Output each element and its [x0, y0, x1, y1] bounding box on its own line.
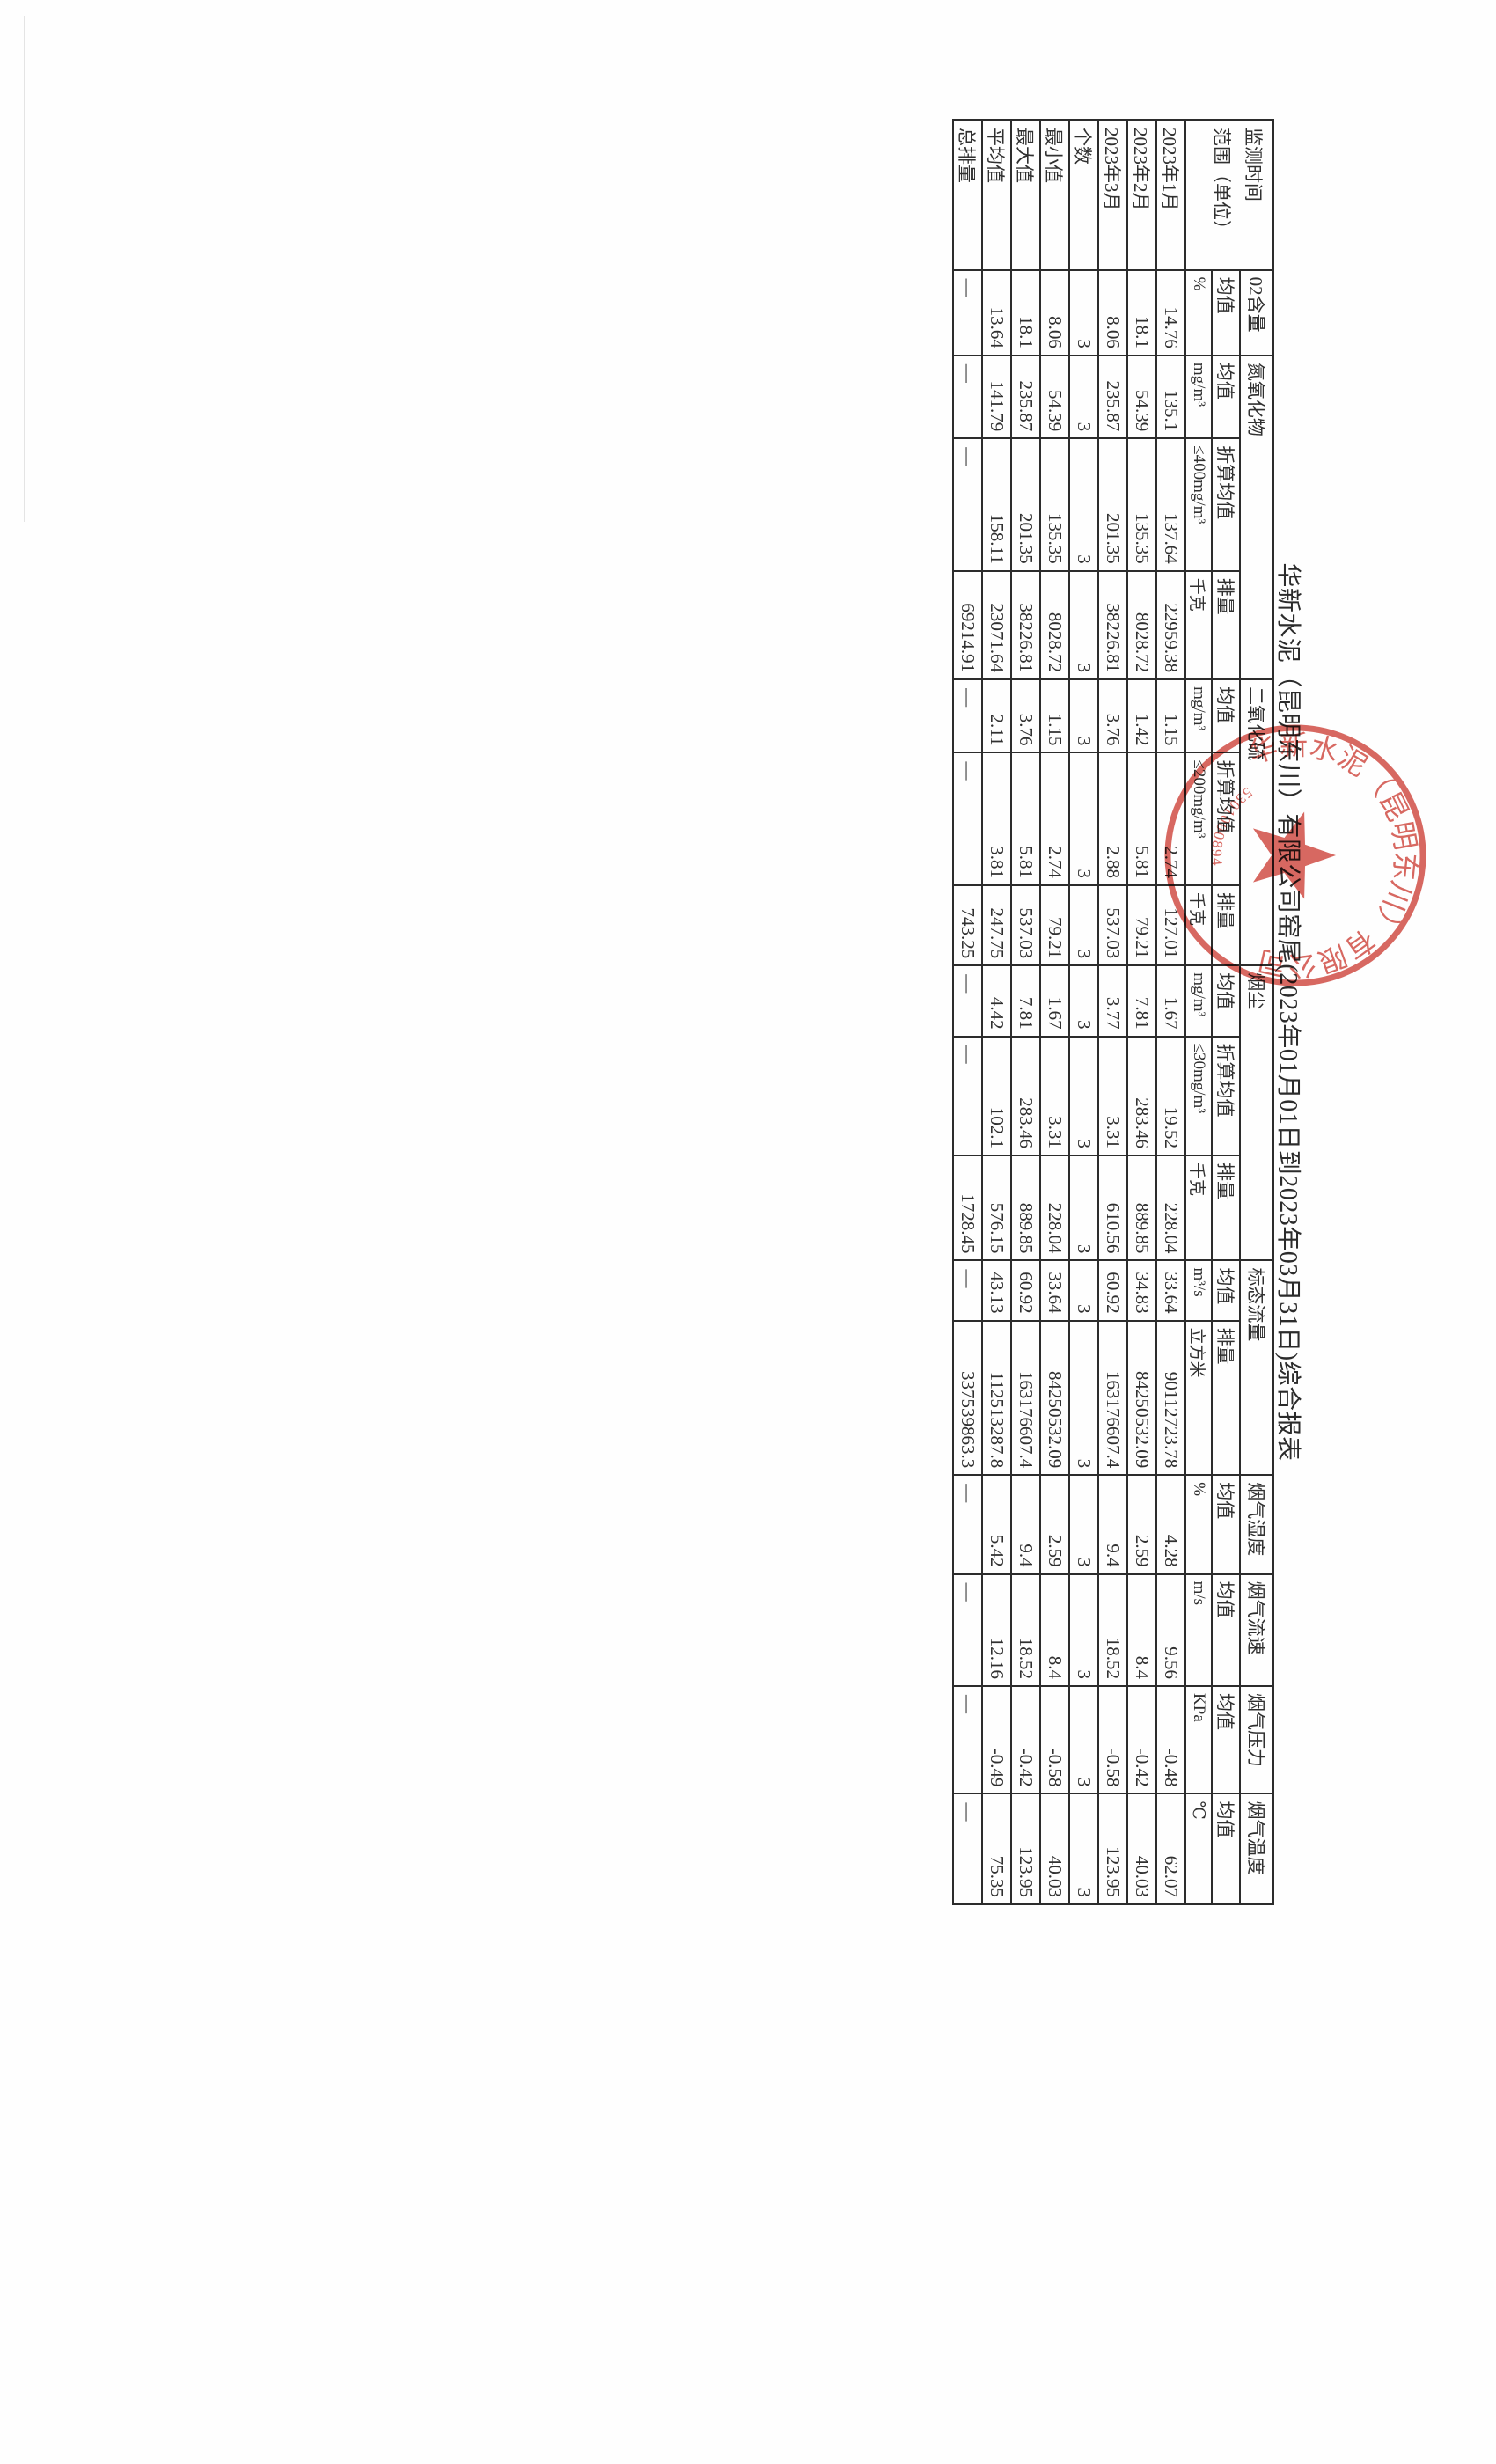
data-cell: 163176607.4 — [1011, 1321, 1040, 1476]
data-cell: 40.03 — [1040, 1793, 1069, 1904]
table-row: 2023年1月14.76135.1137.6422959.381.152.741… — [1156, 120, 1185, 1904]
data-cell: 163176607.4 — [1098, 1321, 1127, 1476]
data-cell: 38226.81 — [1098, 571, 1127, 679]
data-cell: 4.28 — [1156, 1475, 1185, 1573]
data-cell: 7.81 — [1127, 965, 1156, 1036]
data-cell: 33.64 — [1040, 1260, 1069, 1320]
data-cell: 19.52 — [1156, 1037, 1185, 1155]
seal-code-text: 5301000894 — [1208, 784, 1256, 868]
group-header-cell: 02含量 — [1240, 270, 1273, 356]
data-cell: 3 — [1069, 571, 1098, 679]
data-cell: 33.64 — [1156, 1260, 1185, 1320]
data-cell: 3 — [1069, 679, 1098, 752]
data-cell: 90112723.78 — [1156, 1321, 1185, 1476]
data-cell: 2.11 — [982, 679, 1011, 752]
table-row: 2023年2月18.154.39135.358028.721.425.8179.… — [1127, 120, 1156, 1904]
seal-star-icon — [1253, 812, 1336, 899]
data-cell: 610.56 — [1098, 1155, 1127, 1260]
data-cell: 2.59 — [1040, 1475, 1069, 1573]
data-cell: — — [953, 356, 982, 438]
data-cell: 228.04 — [1156, 1155, 1185, 1260]
unit-cell: m/s — [1185, 1574, 1212, 1686]
data-cell: 3 — [1069, 356, 1098, 438]
data-cell: 3 — [1069, 965, 1098, 1036]
report-title: 华新水泥（昆明东川）有限公司窑尾(2023年01月01日到2023年03月31日… — [1272, 119, 1308, 1905]
table-row: 最小值8.0654.39135.358028.721.152.7479.211.… — [1040, 120, 1069, 1904]
data-cell: 3 — [1069, 270, 1098, 356]
data-cell: 283.46 — [1127, 1037, 1156, 1155]
data-cell: 8028.72 — [1127, 571, 1156, 679]
group-header-cell: 烟气温度 — [1240, 1793, 1273, 1904]
corner-header-cell: 监测时间范围（单位） — [1185, 120, 1273, 270]
data-cell: 3.76 — [1098, 679, 1127, 752]
data-cell: -0.42 — [1011, 1686, 1040, 1793]
data-cell: 537.03 — [1098, 885, 1127, 965]
company-seal-stamp: 华新水泥（昆明东川）有限公司 5301000894 — [1162, 722, 1429, 989]
data-cell: 889.85 — [1127, 1155, 1156, 1260]
data-cell: 3 — [1069, 1155, 1098, 1260]
data-cell: 123.95 — [1098, 1793, 1127, 1904]
group-header-cell: 标态流量 — [1240, 1260, 1273, 1475]
data-cell: 743.25 — [953, 885, 982, 965]
data-cell: 228.04 — [1040, 1155, 1069, 1260]
group-header-cell: 烟尘 — [1240, 965, 1273, 1260]
data-cell: 5.81 — [1011, 752, 1040, 885]
data-cell: -0.58 — [1040, 1686, 1069, 1793]
table-row: 最大值18.1235.87201.3538226.813.765.81537.0… — [1011, 120, 1040, 1904]
data-cell: -0.58 — [1098, 1686, 1127, 1793]
data-cell: 3 — [1069, 1321, 1098, 1476]
data-cell: 13.64 — [982, 270, 1011, 356]
rotated-sheet: 华新水泥（昆明东川）有限公司窑尾(2023年01月01日到2023年03月31日… — [0, 0, 1496, 2464]
data-cell: 60.92 — [1098, 1260, 1127, 1320]
corner-line1: 监测时间 — [1237, 128, 1269, 269]
data-cell: 84250532.09 — [1127, 1321, 1156, 1476]
data-cell: 3 — [1069, 885, 1098, 965]
data-cell: 137.64 — [1156, 438, 1185, 571]
data-cell: 4.42 — [982, 965, 1011, 1036]
data-cell: 18.52 — [1098, 1574, 1127, 1686]
data-cell: 84250532.09 — [1040, 1321, 1069, 1476]
table-row: 平均值13.64141.79158.1123071.642.113.81247.… — [982, 120, 1011, 1904]
scanned-report-page: 华新水泥（昆明东川）有限公司窑尾(2023年01月01日到2023年03月31日… — [0, 0, 1496, 2464]
data-cell: 3 — [1069, 1793, 1098, 1904]
unit-cell: ≤400mg/m³ — [1185, 438, 1212, 571]
subheader-cell: 均值 — [1212, 1686, 1240, 1793]
data-cell: 201.35 — [1098, 438, 1127, 571]
data-cell: 141.79 — [982, 356, 1011, 438]
row-label-cell: 最大值 — [1011, 120, 1040, 270]
data-cell: 3.81 — [982, 752, 1011, 885]
data-cell: 7.81 — [1011, 965, 1040, 1036]
data-cell: 3.31 — [1098, 1037, 1127, 1155]
data-cell: — — [953, 679, 982, 752]
data-cell: 69214.91 — [953, 571, 982, 679]
data-cell: 79.21 — [1040, 885, 1069, 965]
subheader-cell: 均值 — [1212, 1793, 1240, 1904]
data-cell: 3 — [1069, 438, 1098, 571]
data-cell: 158.11 — [982, 438, 1011, 571]
data-cell: — — [953, 270, 982, 356]
row-label-cell: 最小值 — [1040, 120, 1069, 270]
data-cell: 889.85 — [1011, 1155, 1040, 1260]
data-cell: 102.1 — [982, 1037, 1011, 1155]
data-cell: 2.74 — [1040, 752, 1069, 885]
data-cell: 135.35 — [1127, 438, 1156, 571]
data-cell: 235.87 — [1098, 356, 1127, 438]
group-header-cell: 氮氧化物 — [1240, 356, 1273, 679]
data-cell: 3.31 — [1040, 1037, 1069, 1155]
data-cell: 18.1 — [1011, 270, 1040, 356]
unit-cell: KPa — [1185, 1686, 1212, 1793]
subheader-cell: 折算均值 — [1212, 1037, 1240, 1155]
data-cell: 1.67 — [1040, 965, 1069, 1036]
row-label-cell: 平均值 — [982, 120, 1011, 270]
group-header-cell: 烟气压力 — [1240, 1686, 1273, 1793]
data-cell: 3 — [1069, 1475, 1098, 1573]
data-cell: 9.4 — [1011, 1475, 1040, 1573]
data-cell: 3 — [1069, 1260, 1098, 1320]
subheader-cell: 排量 — [1212, 1321, 1240, 1476]
data-cell: — — [953, 1037, 982, 1155]
row-label-cell: 2023年1月 — [1156, 120, 1185, 270]
data-cell: 38226.81 — [1011, 571, 1040, 679]
data-cell: 22959.38 — [1156, 571, 1185, 679]
data-cell: 337539863.3 — [953, 1321, 982, 1476]
data-cell: 9.4 — [1098, 1475, 1127, 1573]
unit-cell: 千克 — [1185, 1155, 1212, 1260]
table-row: 总排量———69214.91——743.25——1728.45—33753986… — [953, 120, 982, 1904]
unit-cell: % — [1185, 270, 1212, 356]
data-cell: 14.76 — [1156, 270, 1185, 356]
subheader-cell: 均值 — [1212, 1260, 1240, 1320]
data-cell: 3.76 — [1011, 679, 1040, 752]
data-cell: 5.42 — [982, 1475, 1011, 1573]
unit-cell: % — [1185, 1475, 1212, 1573]
unit-cell: ≤30mg/m³ — [1185, 1037, 1212, 1155]
data-cell: 75.35 — [982, 1793, 1011, 1904]
data-cell: — — [953, 438, 982, 571]
row-label-cell: 总排量 — [953, 120, 982, 270]
unit-cell: mg/m³ — [1185, 356, 1212, 438]
subheader-cell: 均值 — [1212, 356, 1240, 438]
data-cell: 123.95 — [1011, 1793, 1040, 1904]
data-cell: 283.46 — [1011, 1037, 1040, 1155]
unit-cell: 立方米 — [1185, 1321, 1212, 1476]
data-cell: 8.06 — [1040, 270, 1069, 356]
data-cell: — — [953, 752, 982, 885]
data-cell: — — [953, 1475, 982, 1573]
data-cell: 18.1 — [1127, 270, 1156, 356]
unit-cell: ℃ — [1185, 1793, 1212, 1904]
group-header-cell: 烟气湿度 — [1240, 1475, 1273, 1573]
data-cell: 8.4 — [1127, 1574, 1156, 1686]
data-cell: 3 — [1069, 1686, 1098, 1793]
data-cell: 2.88 — [1098, 752, 1127, 885]
data-cell: 34.83 — [1127, 1260, 1156, 1320]
data-cell: 3 — [1069, 752, 1098, 885]
data-cell: 235.87 — [1011, 356, 1040, 438]
data-cell: — — [953, 1686, 982, 1793]
data-cell: 5.81 — [1127, 752, 1156, 885]
subheader-cell: 均值 — [1212, 1574, 1240, 1686]
data-cell: 3 — [1069, 1574, 1098, 1686]
data-cell: -0.48 — [1156, 1686, 1185, 1793]
data-cell: 18.52 — [1011, 1574, 1040, 1686]
data-cell: 112513287.8 — [982, 1321, 1011, 1476]
data-cell: 3.77 — [1098, 965, 1127, 1036]
data-cell: -0.49 — [982, 1686, 1011, 1793]
table-row: 个数3333333333333333 — [1069, 120, 1098, 1904]
data-cell: — — [953, 1260, 982, 1320]
data-cell: 1.15 — [1040, 679, 1069, 752]
data-cell: 247.75 — [982, 885, 1011, 965]
data-cell: 23071.64 — [982, 571, 1011, 679]
subheader-cell: 均值 — [1212, 1475, 1240, 1573]
data-cell: -0.42 — [1127, 1686, 1156, 1793]
data-cell: 576.15 — [982, 1155, 1011, 1260]
data-cell: 8.4 — [1040, 1574, 1069, 1686]
subheader-cell: 均值 — [1212, 270, 1240, 356]
subheader-cell: 排量 — [1212, 571, 1240, 679]
corner-line2: 范围（单位） — [1206, 128, 1237, 269]
data-cell: 62.07 — [1156, 1793, 1185, 1904]
unit-cell: m³/s — [1185, 1260, 1212, 1320]
data-cell: 2.59 — [1127, 1475, 1156, 1573]
data-cell: 43.13 — [982, 1260, 1011, 1320]
subheader-cell: 排量 — [1212, 1155, 1240, 1260]
data-cell: 1.42 — [1127, 679, 1156, 752]
data-cell: 12.16 — [982, 1574, 1011, 1686]
subheader-cell: 折算均值 — [1212, 438, 1240, 571]
data-cell: 1728.45 — [953, 1155, 982, 1260]
unit-cell: 千克 — [1185, 571, 1212, 679]
data-cell: 8.06 — [1098, 270, 1127, 356]
group-header-cell: 烟气流速 — [1240, 1574, 1273, 1686]
data-cell: 40.03 — [1127, 1793, 1156, 1904]
data-cell: 60.92 — [1011, 1260, 1040, 1320]
data-cell: 9.56 — [1156, 1574, 1185, 1686]
row-label-cell: 2023年2月 — [1127, 120, 1156, 270]
data-cell: 54.39 — [1040, 356, 1069, 438]
data-cell: 79.21 — [1127, 885, 1156, 965]
row-label-cell: 2023年3月 — [1098, 120, 1127, 270]
data-cell: 537.03 — [1011, 885, 1040, 965]
data-cell: — — [953, 965, 982, 1036]
data-cell: — — [953, 1574, 982, 1686]
data-cell: 135.35 — [1040, 438, 1069, 571]
data-cell: — — [953, 1793, 982, 1904]
monitoring-report-table: 监测时间范围（单位）02含量氮氧化物二氧化硫烟尘标态流量烟气湿度烟气流速烟气压力… — [952, 119, 1274, 1905]
data-cell: 54.39 — [1127, 356, 1156, 438]
data-cell: 3 — [1069, 1037, 1098, 1155]
data-cell: 201.35 — [1011, 438, 1040, 571]
data-cell: 135.1 — [1156, 356, 1185, 438]
table-row: 2023年3月8.06235.87201.3538226.813.762.885… — [1098, 120, 1127, 1904]
row-label-cell: 个数 — [1069, 120, 1098, 270]
data-cell: 8028.72 — [1040, 571, 1069, 679]
